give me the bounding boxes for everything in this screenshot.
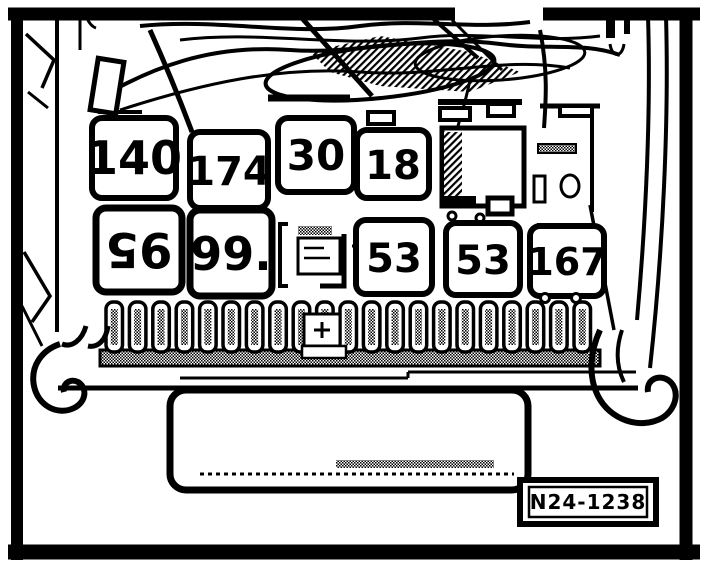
left-edge-connector bbox=[90, 58, 124, 113]
fuse-slot-element bbox=[345, 309, 352, 345]
relay-box-53a: 53 bbox=[356, 220, 432, 294]
panel-edge-left bbox=[22, 16, 96, 346]
right-hook bbox=[591, 330, 675, 423]
relay-label-53a: 53 bbox=[366, 236, 422, 282]
shelf-edge bbox=[58, 372, 638, 388]
relay-label-174: 174 bbox=[187, 149, 271, 195]
relay-box-140: 140 bbox=[86, 118, 182, 198]
relay-row-2: 95 99. 53 53 167 bbox=[96, 208, 607, 303]
relay-label-95: 95 bbox=[106, 221, 173, 277]
relay-panel-figure: 140 174 30 18 95 bbox=[0, 0, 704, 566]
wiring-harness bbox=[96, 16, 620, 132]
fuse-row bbox=[106, 302, 591, 352]
fuse-slot-element bbox=[555, 309, 562, 345]
relay-box-18: 18 bbox=[357, 130, 429, 198]
mounting-tray bbox=[170, 390, 528, 490]
fuse-slot-element bbox=[204, 309, 211, 345]
relay-box-99: 99. bbox=[190, 210, 272, 296]
carrier-pin bbox=[541, 294, 550, 303]
fuse-slot-element bbox=[368, 309, 375, 345]
mid-connector-detail bbox=[280, 224, 362, 286]
panel-edge-right bbox=[590, 12, 667, 368]
fuse-slot-element bbox=[509, 309, 516, 345]
fuse-slot-element bbox=[532, 309, 539, 345]
relay-label-99: 99. bbox=[190, 227, 272, 281]
fuse-slot-element bbox=[275, 309, 282, 345]
diagram-svg: 140 174 30 18 95 bbox=[0, 0, 704, 566]
relay-label-18: 18 bbox=[365, 143, 421, 189]
fuse-slot-element bbox=[438, 309, 445, 345]
relay-label-53b: 53 bbox=[455, 238, 511, 284]
relay-box-95: 95 bbox=[96, 208, 182, 292]
left-hook bbox=[33, 326, 108, 411]
fuse-slot-element bbox=[111, 309, 118, 345]
relay-box-30: 30 bbox=[278, 118, 354, 192]
relay-label-167: 167 bbox=[527, 240, 606, 284]
figure-number-box: N24-1238 bbox=[520, 480, 656, 524]
fuse-slot-element bbox=[485, 309, 492, 345]
fuse-slot-element bbox=[415, 309, 422, 345]
relay-row-1: 140 174 30 18 bbox=[86, 118, 429, 208]
fuse-slot-element bbox=[181, 309, 188, 345]
fuse-slot-element bbox=[392, 309, 399, 345]
fuse-slot-element bbox=[579, 309, 586, 345]
relay-box-174: 174 bbox=[187, 132, 271, 208]
relay-box-167: 167 bbox=[527, 226, 606, 296]
relay-label-30: 30 bbox=[287, 131, 345, 180]
fuse-slot-element bbox=[251, 309, 258, 345]
fuse-slot-element bbox=[462, 309, 469, 345]
relay-box-53b: 53 bbox=[446, 223, 520, 295]
fuse-slot-element bbox=[228, 309, 235, 345]
fuse-slot-element bbox=[158, 309, 165, 345]
relay-label-140: 140 bbox=[86, 131, 182, 185]
figure-number-label: N24-1238 bbox=[530, 490, 647, 514]
fuse-slot-element bbox=[134, 309, 141, 345]
fuse-row-center-connector bbox=[302, 314, 346, 358]
relay-mounting-tabs bbox=[368, 104, 592, 124]
empty-relay-socket bbox=[442, 128, 524, 222]
